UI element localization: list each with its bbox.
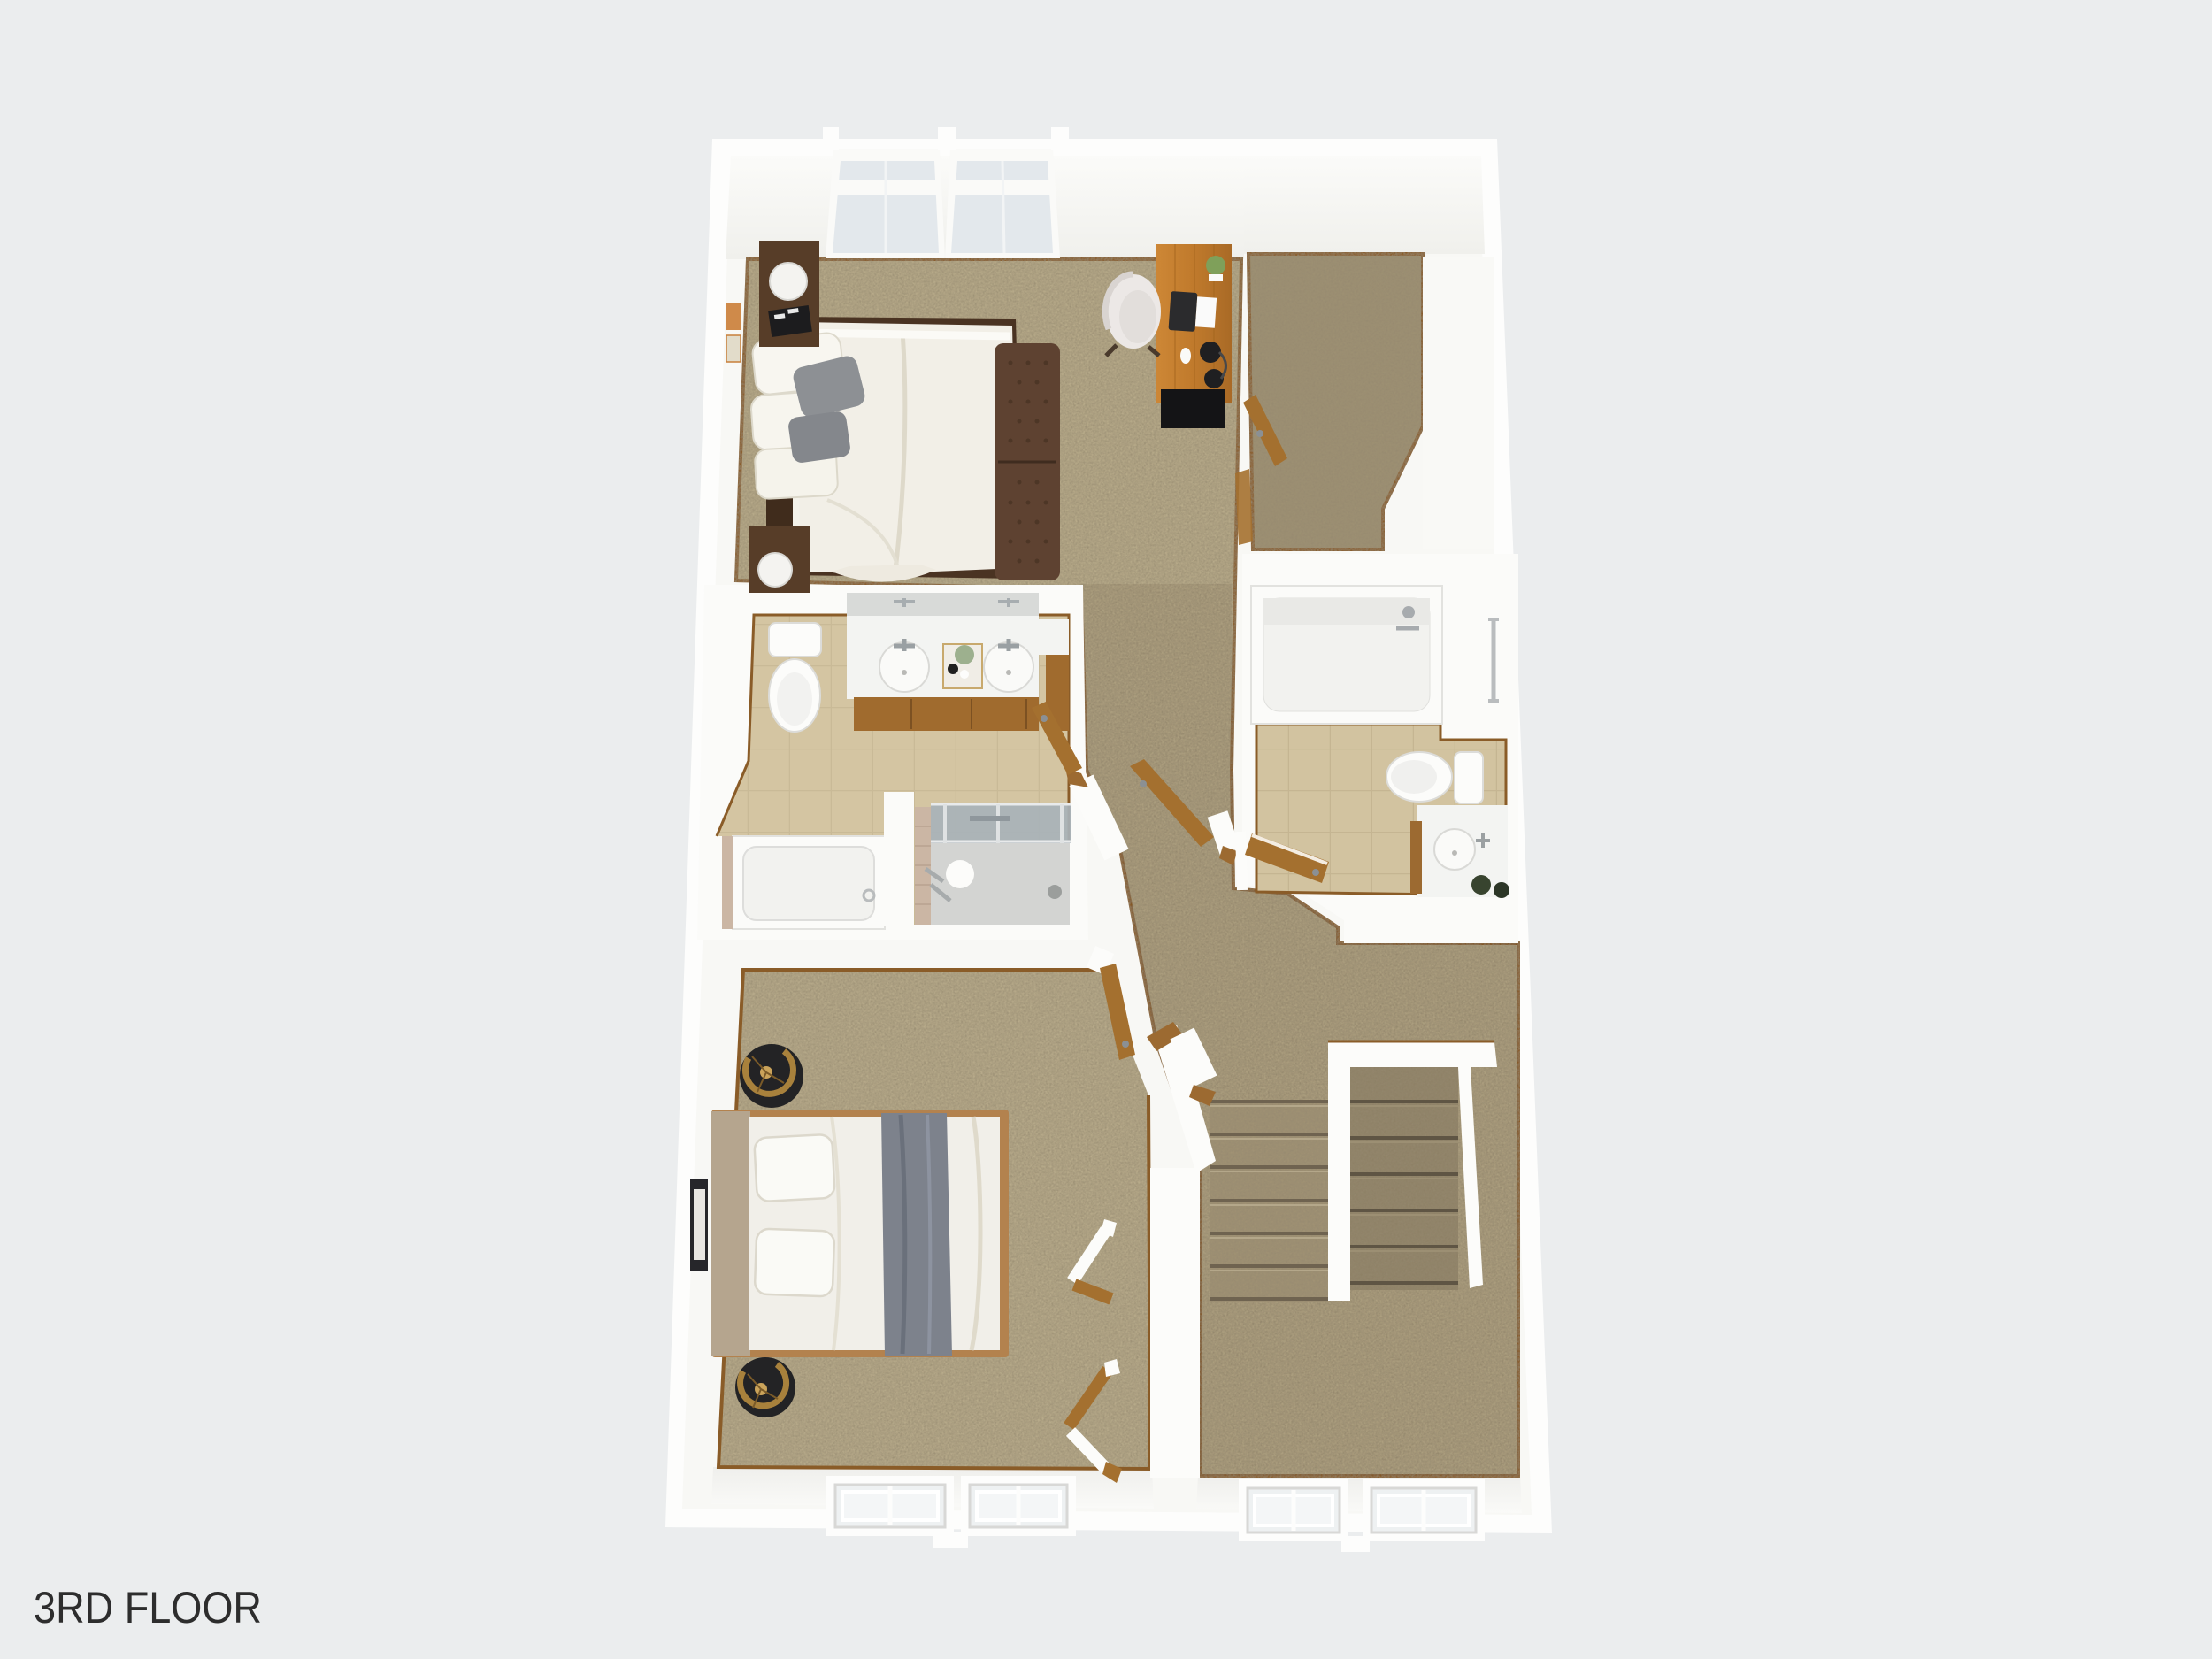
svg-text:3RD FLOOR: 3RD FLOOR	[34, 1583, 262, 1632]
